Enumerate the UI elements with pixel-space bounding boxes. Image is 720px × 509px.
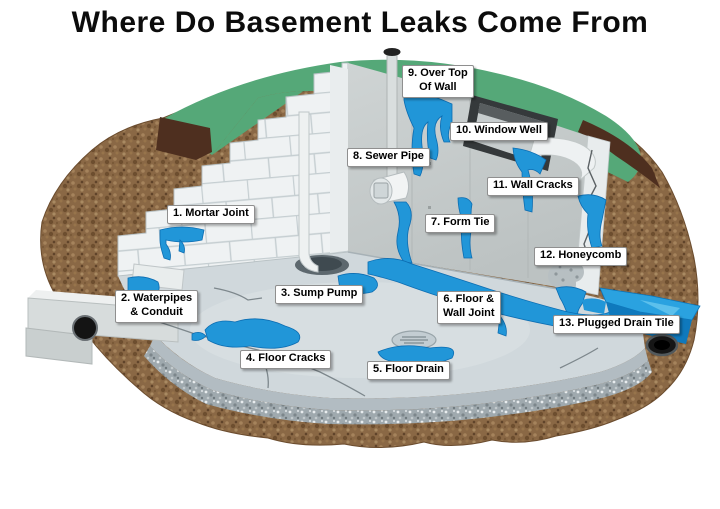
- label-window-well: 10. Window Well: [450, 122, 548, 141]
- label-sump-pump: 3. Sump Pump: [275, 285, 363, 304]
- label-over-top-of-wall: 9. Over Top Of Wall: [402, 65, 474, 98]
- label-floor-drain: 5. Floor Drain: [367, 361, 450, 380]
- label-waterpipes-conduit: 2. Waterpipes & Conduit: [115, 290, 198, 323]
- label-mortar-joint: 1. Mortar Joint: [167, 205, 255, 224]
- label-sewer-pipe: 8. Sewer Pipe: [347, 148, 430, 167]
- label-wall-cracks: 11. Wall Cracks: [487, 177, 579, 196]
- label-form-tie: 7. Form Tie: [425, 214, 495, 233]
- label-floor-wall-joint: 6. Floor & Wall Joint: [437, 291, 501, 324]
- label-floor-cracks: 4. Floor Cracks: [240, 350, 331, 369]
- label-layer: 1. Mortar Joint2. Waterpipes & Conduit3.…: [0, 0, 720, 509]
- basement-leak-infographic: Where Do Basement Leaks Come From 1. Mor…: [0, 0, 720, 509]
- label-plugged-drain-tile: 13. Plugged Drain Tile: [553, 315, 680, 334]
- label-honeycomb: 12. Honeycomb: [534, 247, 627, 266]
